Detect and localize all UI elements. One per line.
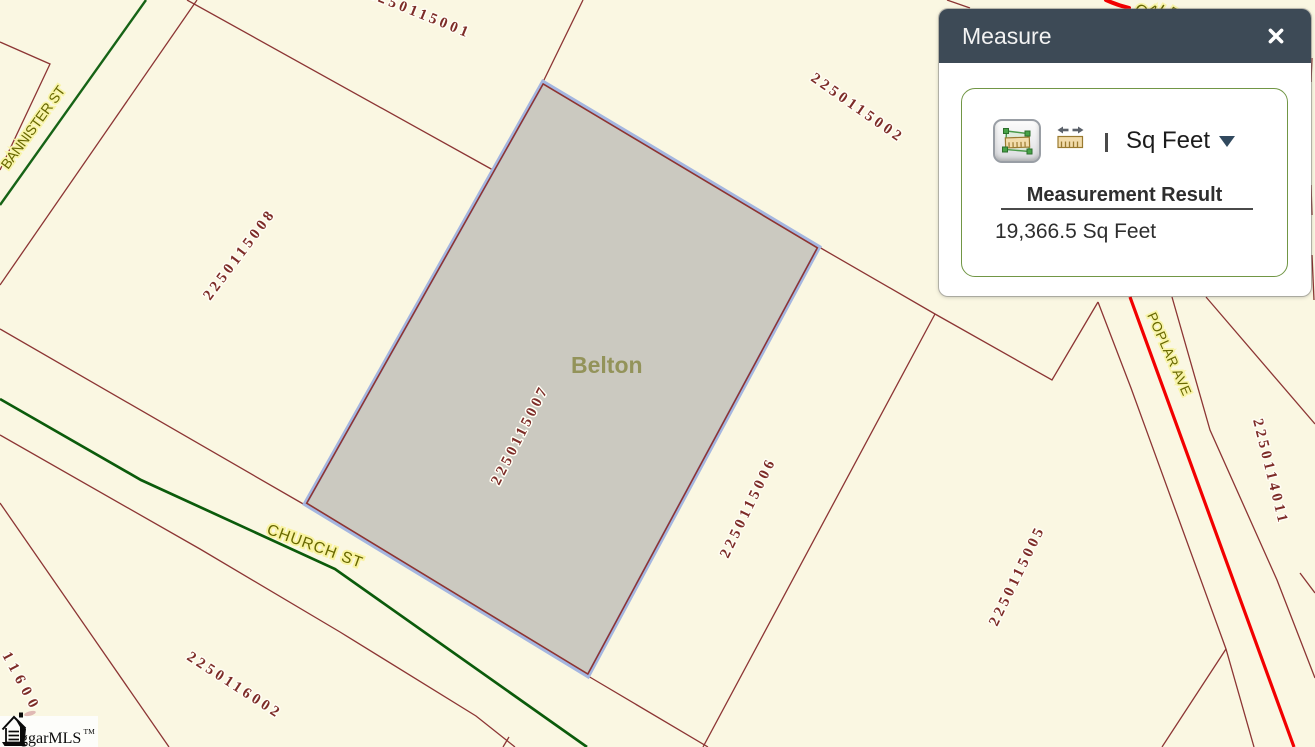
svg-text:Belton: Belton (571, 352, 643, 378)
svg-text:ggarMLS: ggarMLS (20, 730, 81, 747)
svg-text:TM: TM (84, 727, 96, 736)
